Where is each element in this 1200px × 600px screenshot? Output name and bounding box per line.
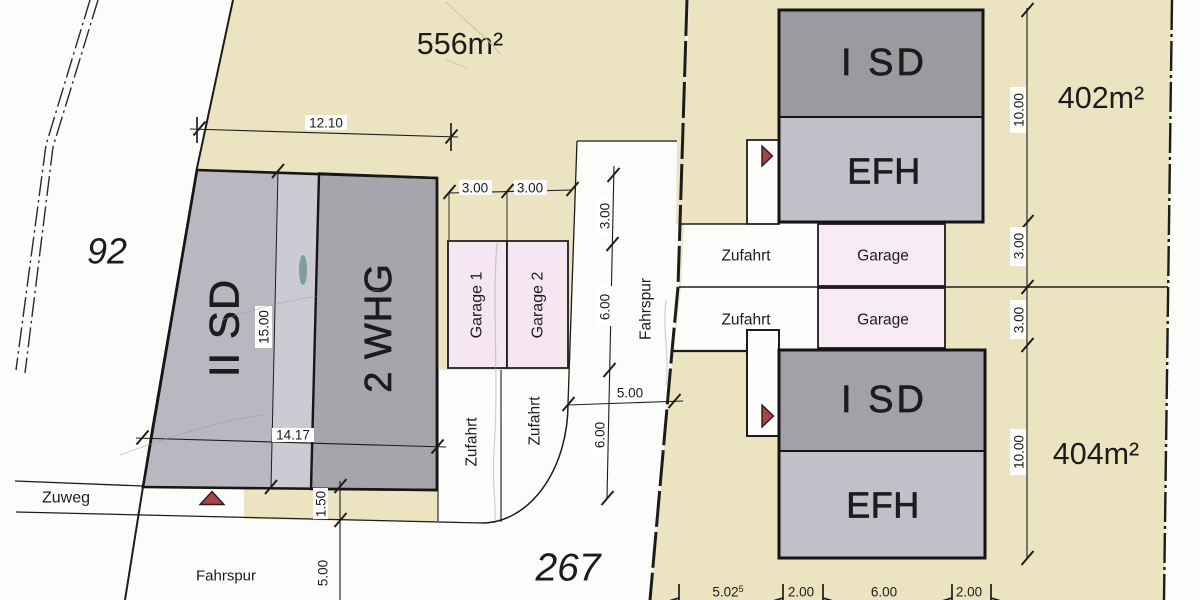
svg-text:Garage 2: Garage 2 — [530, 272, 547, 339]
svg-text:404m²: 404m² — [1053, 437, 1139, 471]
svg-text:14.17: 14.17 — [276, 428, 310, 443]
svg-text:EFH: EFH — [846, 485, 920, 526]
svg-text:3.00: 3.00 — [1012, 233, 1027, 259]
svg-text:I SD: I SD — [841, 379, 927, 421]
svg-text:Garage: Garage — [857, 312, 909, 329]
svg-text:3.00: 3.00 — [1012, 307, 1027, 333]
svg-text:3.00: 3.00 — [598, 203, 613, 229]
svg-text:267: 267 — [534, 547, 601, 590]
svg-text:15.00: 15.00 — [257, 310, 272, 344]
svg-text:6.00: 6.00 — [593, 422, 608, 448]
svg-text:Fahrspur: Fahrspur — [196, 568, 256, 585]
svg-text:EFH: EFH — [847, 151, 921, 192]
svg-text:Garage: Garage — [857, 248, 909, 265]
svg-text:Fahrspur: Fahrspur — [638, 278, 655, 340]
svg-text:Zufahrt: Zufahrt — [464, 417, 481, 467]
svg-text:Garage 1: Garage 1 — [469, 272, 486, 339]
svg-text:I SD: I SD — [841, 42, 927, 84]
svg-text:10.00: 10.00 — [1012, 435, 1027, 469]
svg-text:3.00: 3.00 — [462, 181, 488, 196]
svg-text:6.00: 6.00 — [598, 294, 613, 320]
svg-text:10.00: 10.00 — [1012, 93, 1027, 127]
svg-text:6.00: 6.00 — [871, 585, 897, 600]
svg-text:12.10: 12.10 — [309, 116, 343, 131]
svg-text:Zufahrt: Zufahrt — [527, 396, 544, 446]
svg-text:II SD: II SD — [201, 279, 248, 377]
svg-text:Zufahrt: Zufahrt — [721, 312, 771, 329]
svg-text:2 WHG: 2 WHG — [358, 263, 400, 393]
svg-text:5.00: 5.00 — [316, 560, 331, 586]
svg-text:Zufahrt: Zufahrt — [721, 248, 771, 265]
svg-text:3.00: 3.00 — [517, 181, 543, 196]
svg-text:1.50: 1.50 — [314, 491, 329, 517]
svg-text:2.00: 2.00 — [956, 585, 982, 600]
svg-text:5.00: 5.00 — [617, 386, 643, 401]
svg-text:402m²: 402m² — [1058, 81, 1144, 115]
svg-text:92: 92 — [87, 231, 127, 272]
svg-text:Zuweg: Zuweg — [42, 490, 90, 507]
svg-text:2.00: 2.00 — [788, 585, 814, 600]
